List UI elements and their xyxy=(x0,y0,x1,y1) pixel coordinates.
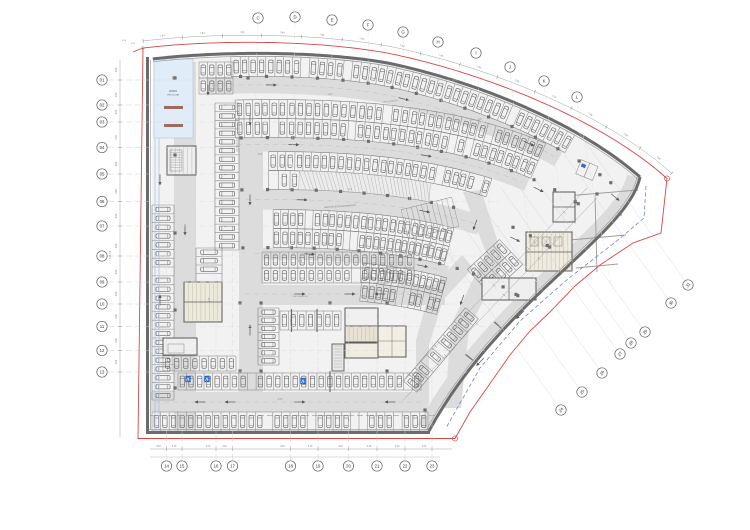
svg-text:CIRCULACION: CIRCULACION xyxy=(292,295,307,298)
svg-text:03: 03 xyxy=(100,120,105,125)
svg-text:♿: ♿ xyxy=(204,376,210,383)
svg-text:2.62: 2.62 xyxy=(116,67,118,72)
svg-text:I: I xyxy=(475,51,476,56)
svg-text:20: 20 xyxy=(346,464,351,469)
svg-text:4.10: 4.10 xyxy=(308,446,313,448)
svg-text:13: 13 xyxy=(100,370,105,375)
svg-text:141.74: 141.74 xyxy=(108,250,112,258)
svg-text:7.84: 7.84 xyxy=(200,32,205,35)
svg-text:7.84: 7.84 xyxy=(240,31,245,34)
svg-text:19: 19 xyxy=(316,464,321,469)
svg-text:H: H xyxy=(436,40,439,45)
svg-text:4.10: 4.10 xyxy=(367,446,372,448)
svg-text:06: 06 xyxy=(100,199,105,204)
svg-text:2.62: 2.62 xyxy=(116,243,118,248)
svg-text:2.62: 2.62 xyxy=(116,189,118,194)
svg-text:2.62: 2.62 xyxy=(116,269,118,274)
svg-text:J: J xyxy=(509,65,511,70)
svg-text:2.62: 2.62 xyxy=(116,161,118,166)
svg-text:07: 07 xyxy=(100,224,105,229)
svg-text:2.62: 2.62 xyxy=(116,359,118,364)
svg-text:4.10: 4.10 xyxy=(206,446,211,448)
svg-text:2.62: 2.62 xyxy=(116,135,118,140)
svg-text:2.62: 2.62 xyxy=(116,213,118,218)
svg-text:08: 08 xyxy=(100,254,105,259)
svg-text:11: 11 xyxy=(100,324,105,329)
svg-text:4.10: 4.10 xyxy=(156,446,161,448)
svg-text:E: E xyxy=(331,18,334,23)
svg-text:4.10: 4.10 xyxy=(172,446,177,448)
svg-text:04: 04 xyxy=(100,145,105,150)
svg-text:4.10: 4.10 xyxy=(222,446,227,448)
svg-text:2.62: 2.62 xyxy=(116,291,118,296)
svg-text:15: 15 xyxy=(180,464,185,469)
svg-text:22: 22 xyxy=(403,464,408,469)
svg-text:21: 21 xyxy=(375,464,380,469)
svg-text:D: D xyxy=(293,15,296,20)
svg-text:2.62: 2.62 xyxy=(116,92,118,97)
svg-text:♿: ♿ xyxy=(185,376,191,383)
svg-text:16: 16 xyxy=(214,464,219,469)
svg-text:01: 01 xyxy=(100,78,105,83)
svg-text:4.10: 4.10 xyxy=(395,446,400,448)
svg-text:7.84: 7.84 xyxy=(280,31,285,34)
svg-text:4.10: 4.10 xyxy=(280,446,285,448)
svg-text:2.62: 2.62 xyxy=(116,109,118,114)
svg-text:14: 14 xyxy=(164,464,169,469)
svg-text:10: 10 xyxy=(100,302,105,307)
svg-text:4.05: 4.05 xyxy=(209,297,211,302)
svg-text:F: F xyxy=(367,23,370,28)
svg-text:17: 17 xyxy=(230,464,235,469)
svg-text:4.05: 4.05 xyxy=(258,154,263,156)
svg-text:RAMPA: RAMPA xyxy=(169,90,178,93)
svg-text:♿: ♿ xyxy=(300,378,306,385)
svg-text:05: 05 xyxy=(100,172,105,177)
svg-text:12: 12 xyxy=(100,348,105,353)
svg-text:4.10: 4.10 xyxy=(338,446,343,448)
svg-text:2.62: 2.62 xyxy=(116,314,118,319)
svg-text:23: 23 xyxy=(430,464,435,469)
svg-text:4.05: 4.05 xyxy=(428,244,433,246)
svg-text:C: C xyxy=(256,16,259,21)
svg-text:4.05: 4.05 xyxy=(298,261,303,263)
svg-text:2.62: 2.62 xyxy=(116,338,118,343)
svg-text:4.10: 4.10 xyxy=(422,446,427,448)
svg-text:K: K xyxy=(543,79,546,84)
svg-text:09: 09 xyxy=(100,280,105,285)
svg-text:18: 18 xyxy=(288,464,293,469)
svg-text:4.05: 4.05 xyxy=(278,399,283,401)
svg-text:02: 02 xyxy=(100,103,105,108)
svg-text:VEHICULAR: VEHICULAR xyxy=(167,93,180,96)
